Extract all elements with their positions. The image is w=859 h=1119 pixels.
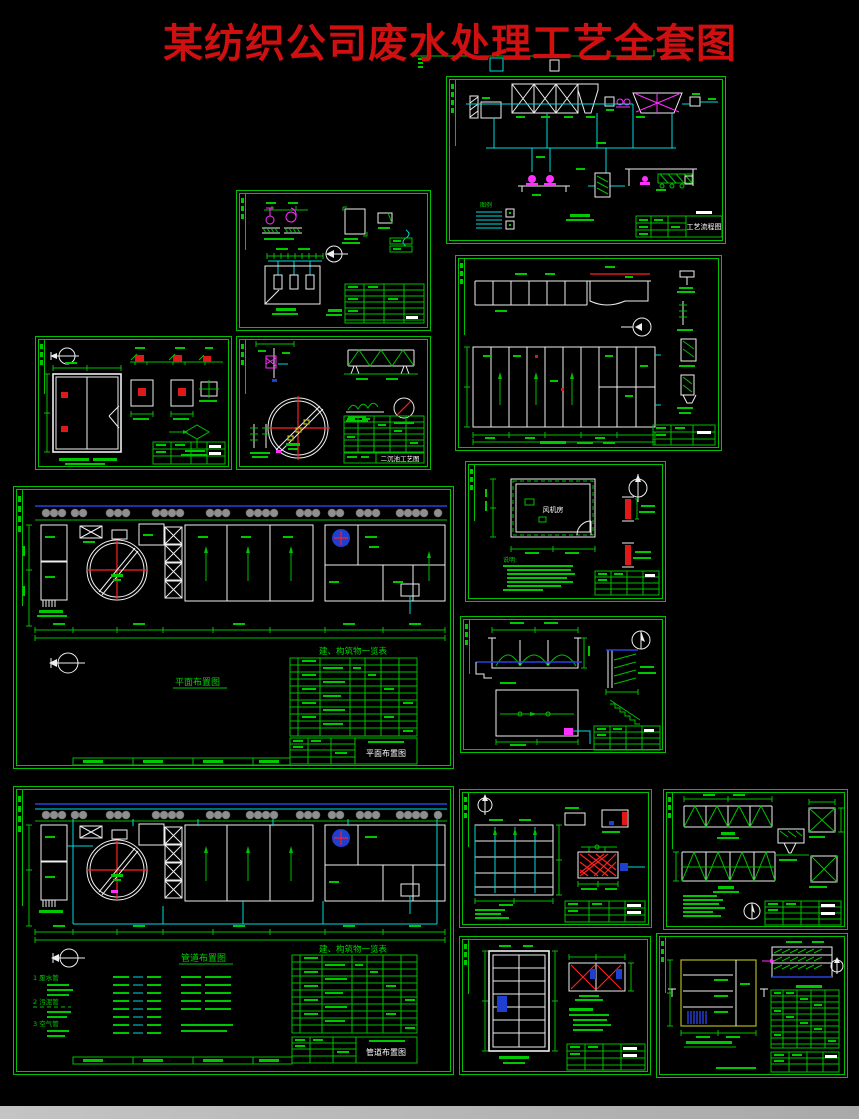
legend-notes-column	[181, 976, 233, 1032]
title-block	[595, 571, 659, 595]
page-title: 某纺织公司废水处理工艺全套图	[163, 22, 723, 66]
site-boundary-trees	[35, 506, 447, 520]
room-label: 风机房	[543, 505, 564, 514]
title-block	[594, 726, 660, 750]
flow-lower-equipment	[518, 169, 697, 197]
notes	[569, 1008, 611, 1031]
bottom-strip	[73, 758, 290, 765]
north-arrow-icon	[831, 957, 843, 974]
panel-pump-detail	[236, 190, 431, 331]
foundation-details	[622, 497, 655, 567]
truss-section-a	[684, 794, 772, 839]
north-arrow-icon	[744, 903, 760, 919]
notes	[683, 895, 725, 917]
notes-title: 说明:	[503, 556, 517, 564]
title-block	[765, 901, 841, 925]
plan-caption: 平面布置图	[175, 676, 220, 688]
legend-item-air: 3 空气管	[33, 1019, 59, 1028]
title-block-label: 二沉池工艺图	[381, 454, 420, 463]
flow-pipes	[466, 102, 718, 186]
north-arrow-icon	[49, 653, 85, 673]
corner-details	[809, 799, 844, 888]
filter-plan-view	[475, 819, 562, 906]
panel-tank-sections	[455, 255, 722, 451]
treatment-tanks	[139, 524, 445, 614]
materials-table	[771, 985, 839, 1048]
brace-section	[569, 954, 634, 1001]
north-arrow-icon	[629, 474, 647, 502]
panel-blower-room: 风机房 说明:	[465, 461, 666, 602]
flow-direction-symbol	[621, 318, 651, 336]
schedule-title: 建、构筑物一览表	[319, 646, 388, 657]
title-block: 管道布置图	[292, 1037, 417, 1063]
blower-room-plan: 风机房	[485, 479, 595, 554]
truss-section-b	[673, 852, 775, 893]
buildings	[37, 525, 127, 617]
cad-drawing-sheet: 某纺织公司废水处理工艺全套图	[0, 0, 859, 1119]
title-block-label: 管道布置图	[366, 1047, 406, 1057]
roof-equipment	[130, 347, 223, 365]
clarifier-circle	[87, 840, 147, 900]
room-plan	[44, 362, 121, 465]
north-arrow-icon	[51, 949, 85, 967]
tank-box	[342, 207, 392, 244]
pipe-network	[67, 819, 437, 924]
title-block	[326, 284, 424, 323]
notes: 说明:	[503, 556, 575, 591]
panel-truss-sections	[663, 789, 848, 930]
clarifier-plan	[266, 396, 330, 460]
north-arrow-icon	[632, 631, 650, 649]
inlet-details	[565, 807, 628, 833]
equipment-details	[131, 380, 219, 420]
legend-title: 图例	[480, 201, 492, 209]
panel-tank-section	[460, 616, 666, 753]
dimension-lines	[26, 825, 445, 943]
north-arrow-icon	[50, 348, 79, 364]
bottom-border-strip	[0, 1106, 859, 1119]
title-block-label: 工艺流程图	[687, 222, 722, 231]
flow-labels	[482, 93, 716, 221]
structure-schedule: 建、构筑物一览表	[292, 944, 417, 1033]
flow-legend: 图例	[476, 201, 514, 229]
tank-plan-view	[496, 690, 590, 746]
panel-plan-layout: 平面布置图 建、构筑物一览表 平面布置图	[13, 486, 454, 769]
flow-top-equipment	[470, 84, 700, 118]
yellow-tank-section	[667, 960, 768, 1047]
structure-schedule: 建、构筑物一览表	[290, 646, 417, 736]
title-block-label: 平面布置图	[366, 748, 406, 758]
mixer-detail	[169, 425, 209, 456]
title-block	[716, 1052, 839, 1072]
legend-item-sludge: 2 污泥管	[33, 997, 59, 1006]
support-detail	[775, 829, 809, 861]
flow-title-block: 工艺流程图	[636, 211, 722, 237]
inlet-detail	[256, 341, 294, 382]
dosing-room-plan	[265, 248, 323, 315]
small-plan-view	[762, 941, 832, 977]
site-boundary-trees	[35, 804, 447, 821]
panel-filter-plan	[459, 789, 652, 928]
pipe-legend: 1 废水管 2 污泥管 3 空气管	[33, 973, 233, 1037]
pump-assembly	[262, 202, 308, 240]
schedule-title: 建、构筑物一览表	[319, 944, 388, 955]
notes	[475, 909, 509, 919]
panel-clarifier: 二沉池工艺图	[236, 336, 431, 470]
section-view	[475, 266, 651, 312]
panel-dosing-room	[35, 336, 232, 470]
north-arrow-icon	[478, 794, 492, 815]
title-block: 平面布置图	[290, 738, 417, 764]
legend-symbols-column	[113, 976, 161, 1034]
detail-sections	[677, 271, 696, 414]
piping-caption: 管道布置图	[181, 952, 226, 964]
title-block	[153, 442, 225, 464]
treatment-tanks	[139, 824, 445, 901]
filter-section-view	[578, 845, 645, 890]
equipment-schedule	[390, 230, 412, 252]
title-block	[567, 1044, 645, 1070]
legend-item-wastewater: 1 废水管	[33, 973, 59, 982]
stair-detail	[610, 700, 640, 724]
bridge-section	[344, 350, 418, 380]
panel-piping-layout: 管道布置图 1 废水管 2 污泥管 3 空气管	[13, 786, 454, 1075]
compass-icon	[326, 246, 348, 262]
tall-plan-view	[482, 945, 558, 1064]
panel-tall-tank-plan	[459, 936, 651, 1075]
tank-section-view	[476, 622, 590, 684]
tank-plan	[464, 347, 661, 445]
title-block	[565, 901, 645, 922]
panel-section-schedule	[656, 933, 848, 1078]
title-block: 二沉池工艺图	[344, 453, 424, 463]
panel-process-flow: 图例 工艺流程图	[446, 76, 726, 244]
clarifier-circle	[87, 540, 147, 600]
wall-detail	[606, 650, 656, 695]
bottom-strip	[73, 1057, 292, 1064]
